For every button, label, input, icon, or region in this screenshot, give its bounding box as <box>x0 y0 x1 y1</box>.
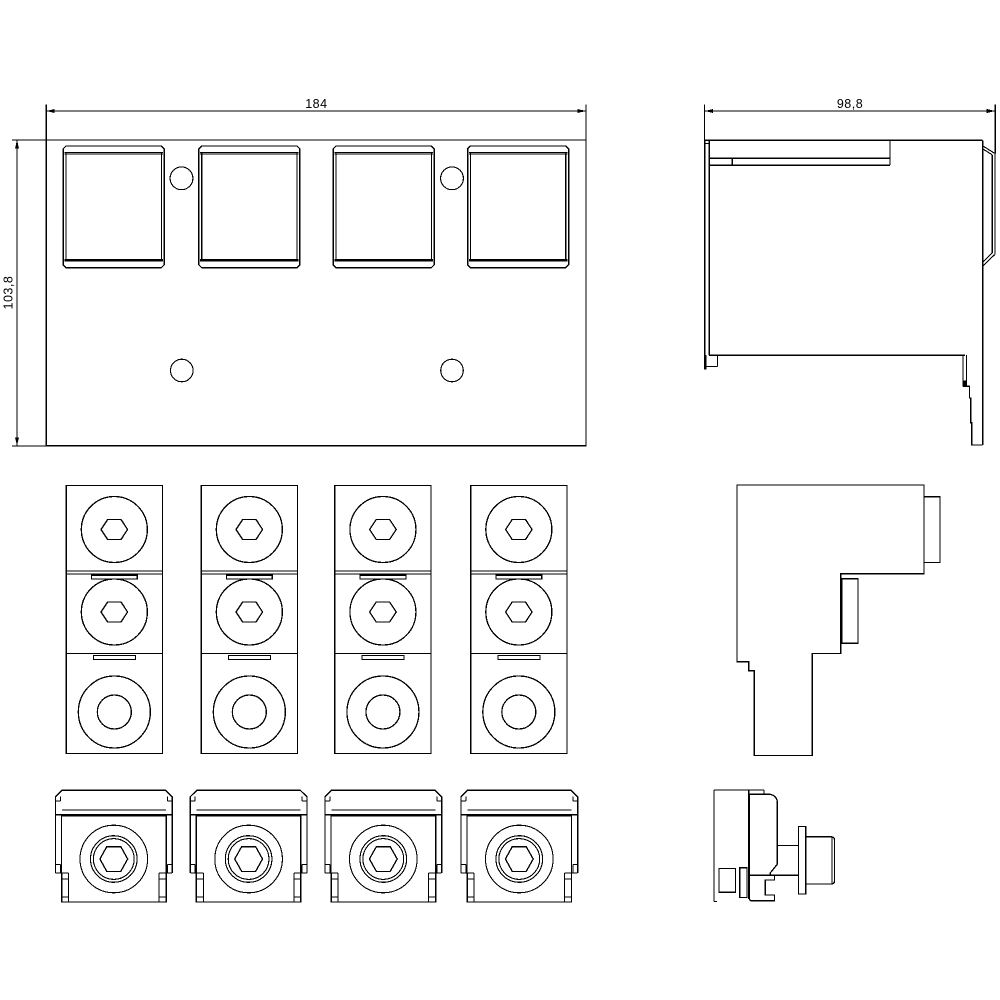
svg-text:98,8: 98,8 <box>837 97 863 111</box>
svg-text:103,8: 103,8 <box>2 276 16 310</box>
svg-text:184: 184 <box>305 97 327 111</box>
